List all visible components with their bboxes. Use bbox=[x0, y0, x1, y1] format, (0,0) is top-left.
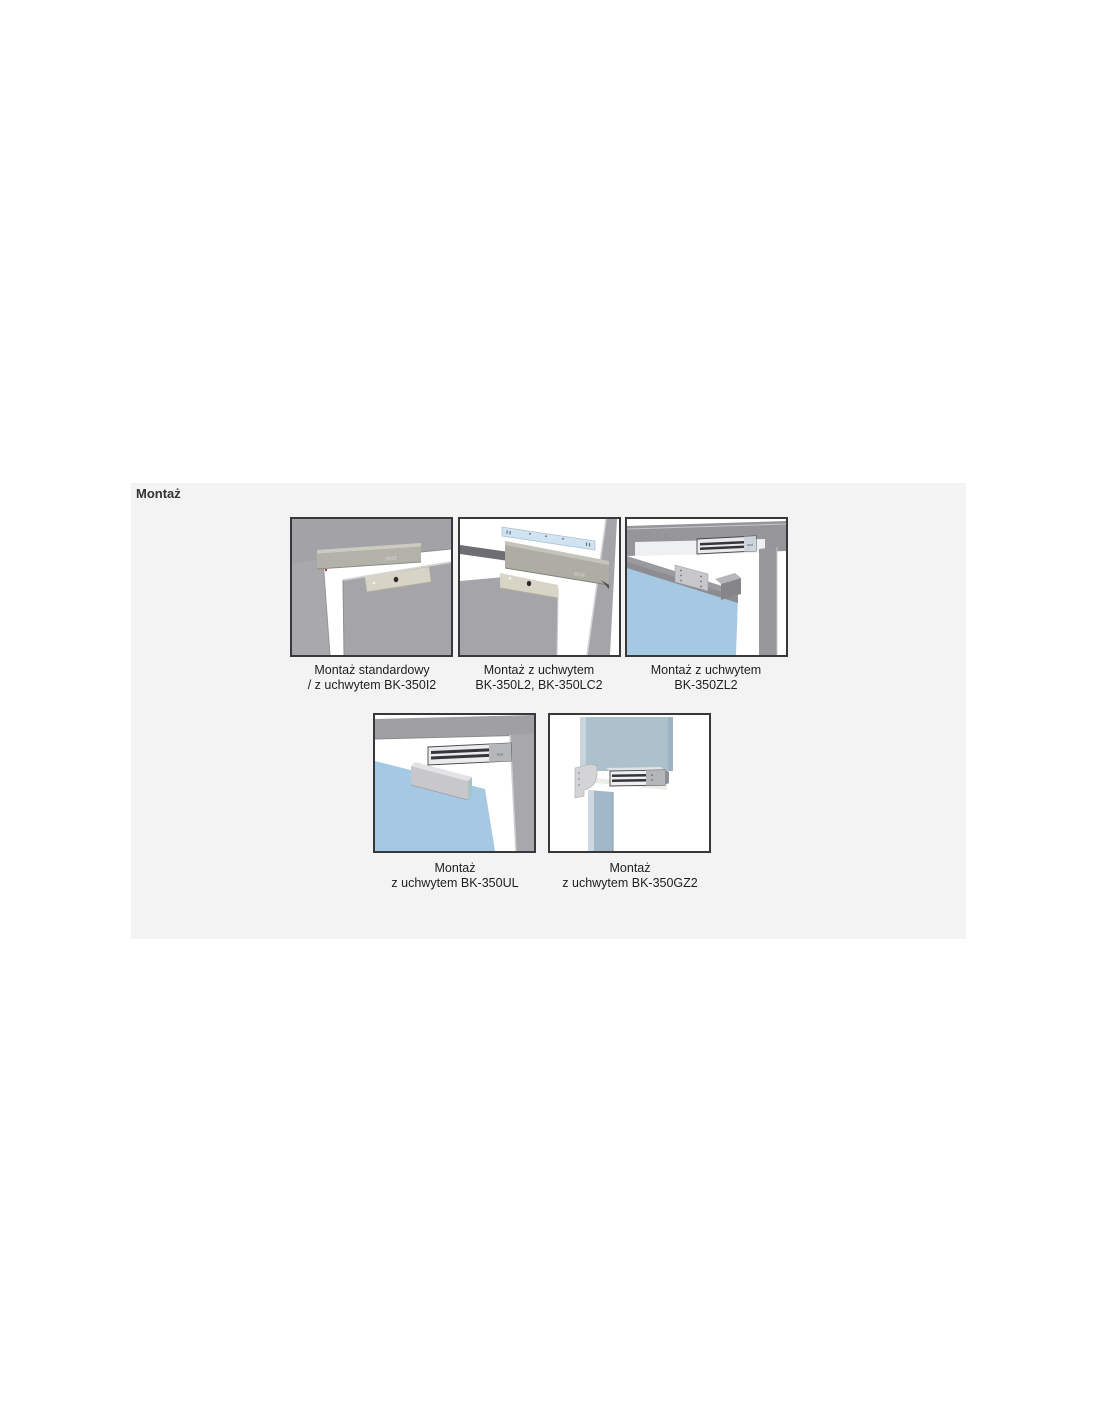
montaz-section: Montaż s bbox=[131, 483, 966, 939]
illustration-bk-350gz2-mount bbox=[548, 713, 711, 853]
caption-line2: BK-350L2, BK-350LC2 bbox=[475, 678, 602, 692]
bk-350zl2-mount-drawing: scot bbox=[627, 519, 786, 655]
upper-glass-panel bbox=[580, 717, 673, 771]
standard-mount-drawing: scot bbox=[292, 519, 451, 655]
document-page: Montaż s bbox=[0, 0, 1100, 1422]
caption-line2: z uchwytem BK-350UL bbox=[391, 876, 518, 890]
illustration-bk-350l2-mount: scot bbox=[458, 517, 621, 657]
wire-dot bbox=[325, 569, 327, 571]
figure-caption-bk-350gz2: Montaż z uchwytem BK-350GZ2 bbox=[520, 861, 740, 891]
maglock-face: scot bbox=[428, 743, 511, 765]
illustration-standard-mount: scot bbox=[290, 517, 453, 657]
maglock-face: scot bbox=[697, 536, 756, 554]
illustration-bk-350ul-mount: scot bbox=[373, 713, 536, 853]
caption-line1: Montaż bbox=[435, 861, 476, 875]
illustration-bk-350zl2-mount: scot bbox=[625, 517, 788, 657]
brand-logo: scot bbox=[385, 556, 397, 563]
bk-350l2-mount-drawing: scot bbox=[460, 519, 619, 655]
caption-line2: BK-350ZL2 bbox=[674, 678, 737, 692]
bk-350ul-mount-drawing: scot bbox=[375, 715, 534, 851]
caption-line2: z uchwytem BK-350GZ2 bbox=[562, 876, 697, 890]
caption-line1: Montaż bbox=[610, 861, 651, 875]
bk-350gz2-mount-drawing bbox=[550, 715, 709, 851]
brand-logo: scot bbox=[747, 543, 753, 547]
figure-caption-bk-350zl2: Montaż z uchwytem BK-350ZL2 bbox=[596, 663, 816, 693]
section-heading: Montaż bbox=[136, 486, 181, 501]
brand-logo: scot bbox=[497, 753, 504, 757]
lower-glass-panel bbox=[588, 790, 613, 851]
maglock-body bbox=[606, 767, 669, 786]
caption-line1: Montaż standardowy bbox=[314, 663, 429, 677]
caption-line1: Montaż z uchwytem bbox=[651, 663, 761, 677]
caption-line2: / z uchwytem BK-350I2 bbox=[308, 678, 437, 692]
caption-line1: Montaż z uchwytem bbox=[484, 663, 594, 677]
